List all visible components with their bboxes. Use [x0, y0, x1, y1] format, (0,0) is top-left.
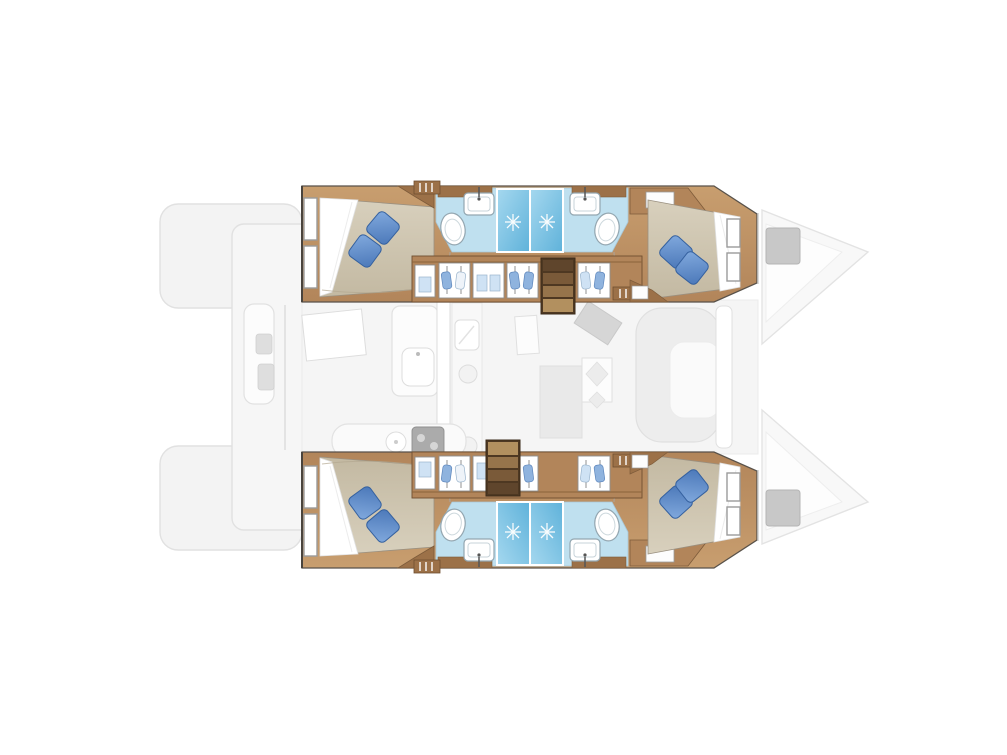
staircase-bottom-hull [486, 440, 520, 496]
stair-tread [488, 483, 518, 494]
floorplan-drawing [0, 0, 1007, 755]
dinette-table [540, 366, 582, 438]
deck-hatch-icon [766, 228, 800, 264]
stair-tread [488, 442, 518, 455]
top-hull-interior [302, 181, 758, 302]
burner-dot [394, 440, 398, 444]
sliding-door-panel [302, 309, 366, 361]
burner-icon [459, 365, 477, 383]
bow-starboard [762, 410, 868, 544]
stair-tread [543, 260, 573, 271]
stair-tread [543, 273, 573, 284]
bottom-hull-interior [302, 452, 758, 573]
stair-tread [488, 470, 518, 481]
sofa-cushions [670, 342, 720, 418]
cockpit-step [258, 364, 274, 390]
forward-window-band [716, 306, 732, 448]
bow-port [762, 210, 868, 344]
galley-faucet-icon [416, 352, 420, 356]
deck-hatch-icon [766, 490, 800, 526]
stair-tread [488, 457, 518, 468]
cockpit-step [256, 334, 272, 354]
floorplan-canvas [0, 0, 1007, 755]
staircase-top-hull [541, 258, 575, 314]
seat-cushion [515, 315, 540, 354]
chart-seat [582, 358, 612, 408]
stair-tread [543, 286, 573, 297]
stair-tread [543, 299, 573, 312]
